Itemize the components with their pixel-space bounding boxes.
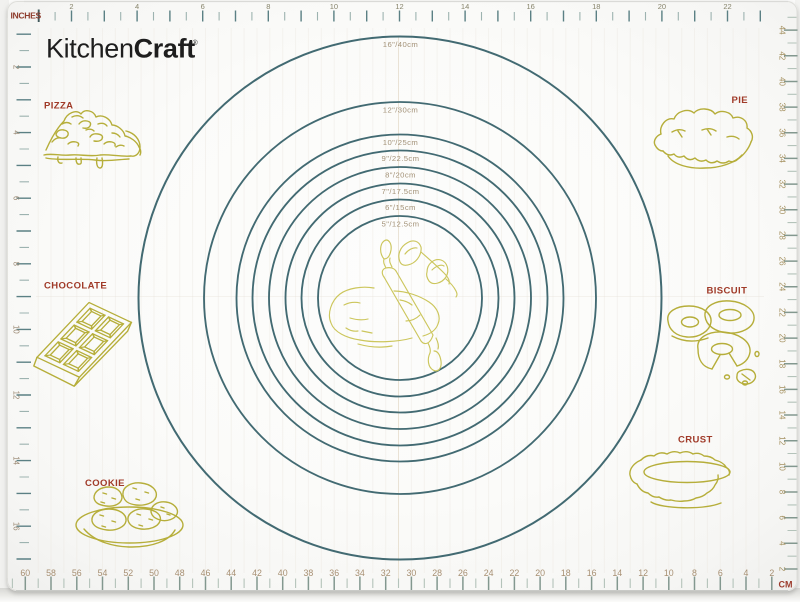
svg-text:60: 60: [20, 568, 30, 578]
svg-text:20: 20: [658, 2, 666, 11]
svg-text:32: 32: [381, 568, 391, 578]
svg-text:34: 34: [355, 568, 365, 578]
svg-text:12"/30cm: 12"/30cm: [383, 106, 418, 115]
svg-text:7"/17.5cm: 7"/17.5cm: [382, 187, 420, 196]
svg-text:6: 6: [12, 196, 21, 200]
svg-text:2: 2: [69, 2, 73, 11]
svg-text:16: 16: [527, 2, 535, 11]
svg-text:16"/40cm: 16"/40cm: [383, 40, 418, 49]
svg-text:8: 8: [266, 2, 270, 11]
svg-text:18: 18: [592, 2, 600, 11]
svg-text:2: 2: [12, 65, 21, 69]
svg-text:36: 36: [329, 568, 339, 578]
svg-text:30: 30: [407, 568, 417, 578]
svg-text:14: 14: [778, 411, 787, 420]
svg-text:6: 6: [778, 515, 787, 520]
svg-text:38: 38: [304, 568, 314, 578]
svg-text:36: 36: [778, 128, 787, 137]
svg-text:CHOCOLATE: CHOCOLATE: [44, 281, 107, 292]
svg-text:52: 52: [123, 568, 133, 578]
svg-text:16: 16: [12, 522, 21, 531]
svg-text:2: 2: [778, 567, 787, 572]
svg-text:54: 54: [98, 568, 108, 578]
svg-text:10: 10: [664, 568, 674, 578]
svg-text:12: 12: [638, 568, 648, 578]
svg-text:10"/25cm: 10"/25cm: [383, 138, 418, 147]
svg-text:22: 22: [723, 2, 731, 11]
svg-text:5"/12.5cm: 5"/12.5cm: [382, 220, 420, 229]
svg-text:12: 12: [395, 2, 403, 11]
svg-text:32: 32: [778, 180, 787, 189]
svg-text:4: 4: [135, 2, 139, 11]
svg-text:14: 14: [612, 568, 622, 578]
svg-text:58: 58: [46, 568, 56, 578]
svg-text:40: 40: [278, 568, 288, 578]
svg-text:8: 8: [778, 490, 787, 495]
svg-text:20: 20: [535, 568, 545, 578]
svg-text:KitchenCraft: KitchenCraft: [46, 34, 195, 64]
svg-text:8"/20cm: 8"/20cm: [385, 171, 416, 180]
svg-text:8: 8: [692, 568, 697, 578]
svg-text:38: 38: [778, 103, 787, 112]
svg-text:34: 34: [778, 154, 787, 163]
svg-text:14: 14: [12, 456, 21, 465]
svg-text:4: 4: [12, 130, 21, 135]
svg-text:10: 10: [330, 2, 338, 11]
svg-text:6: 6: [718, 568, 723, 578]
svg-text:22: 22: [510, 568, 520, 578]
svg-text:18: 18: [778, 359, 787, 368]
svg-text:24: 24: [484, 568, 494, 578]
svg-text:44: 44: [778, 26, 787, 35]
svg-text:44: 44: [226, 568, 236, 578]
svg-text:10: 10: [778, 462, 787, 471]
svg-text:CM: CM: [779, 580, 793, 590]
svg-text:INCHES: INCHES: [11, 11, 42, 21]
svg-text:50: 50: [149, 568, 159, 578]
svg-text:CRUST: CRUST: [678, 435, 713, 446]
svg-text:PIE: PIE: [732, 95, 749, 106]
svg-text:30: 30: [778, 205, 787, 214]
svg-text:10: 10: [12, 325, 21, 334]
svg-text:16: 16: [587, 568, 597, 578]
svg-text:48: 48: [175, 568, 185, 578]
svg-text:12: 12: [778, 436, 787, 445]
svg-text:16: 16: [778, 385, 787, 394]
svg-text:42: 42: [252, 568, 262, 578]
svg-text:26: 26: [778, 257, 787, 266]
svg-text:14: 14: [461, 2, 469, 11]
svg-text:28: 28: [432, 568, 442, 578]
svg-text:BISCUIT: BISCUIT: [707, 286, 748, 297]
svg-text:56: 56: [72, 568, 82, 578]
svg-text:28: 28: [778, 231, 787, 240]
svg-text:18: 18: [561, 568, 571, 578]
svg-text:®: ®: [193, 39, 199, 47]
svg-text:6"/15cm: 6"/15cm: [385, 203, 416, 212]
svg-text:24: 24: [778, 282, 787, 291]
svg-text:9"/22.5cm: 9"/22.5cm: [382, 154, 420, 163]
svg-text:40: 40: [778, 77, 787, 86]
svg-text:42: 42: [778, 51, 787, 60]
svg-text:4: 4: [744, 568, 749, 578]
svg-text:46: 46: [201, 568, 211, 578]
svg-text:8: 8: [12, 262, 21, 266]
svg-text:6: 6: [201, 2, 205, 11]
svg-text:20: 20: [778, 334, 787, 343]
svg-text:22: 22: [778, 308, 787, 317]
svg-text:PIZZA: PIZZA: [44, 101, 73, 112]
svg-text:4: 4: [778, 541, 787, 546]
svg-text:2: 2: [769, 568, 774, 578]
svg-text:12: 12: [12, 391, 21, 400]
svg-text:26: 26: [458, 568, 468, 578]
